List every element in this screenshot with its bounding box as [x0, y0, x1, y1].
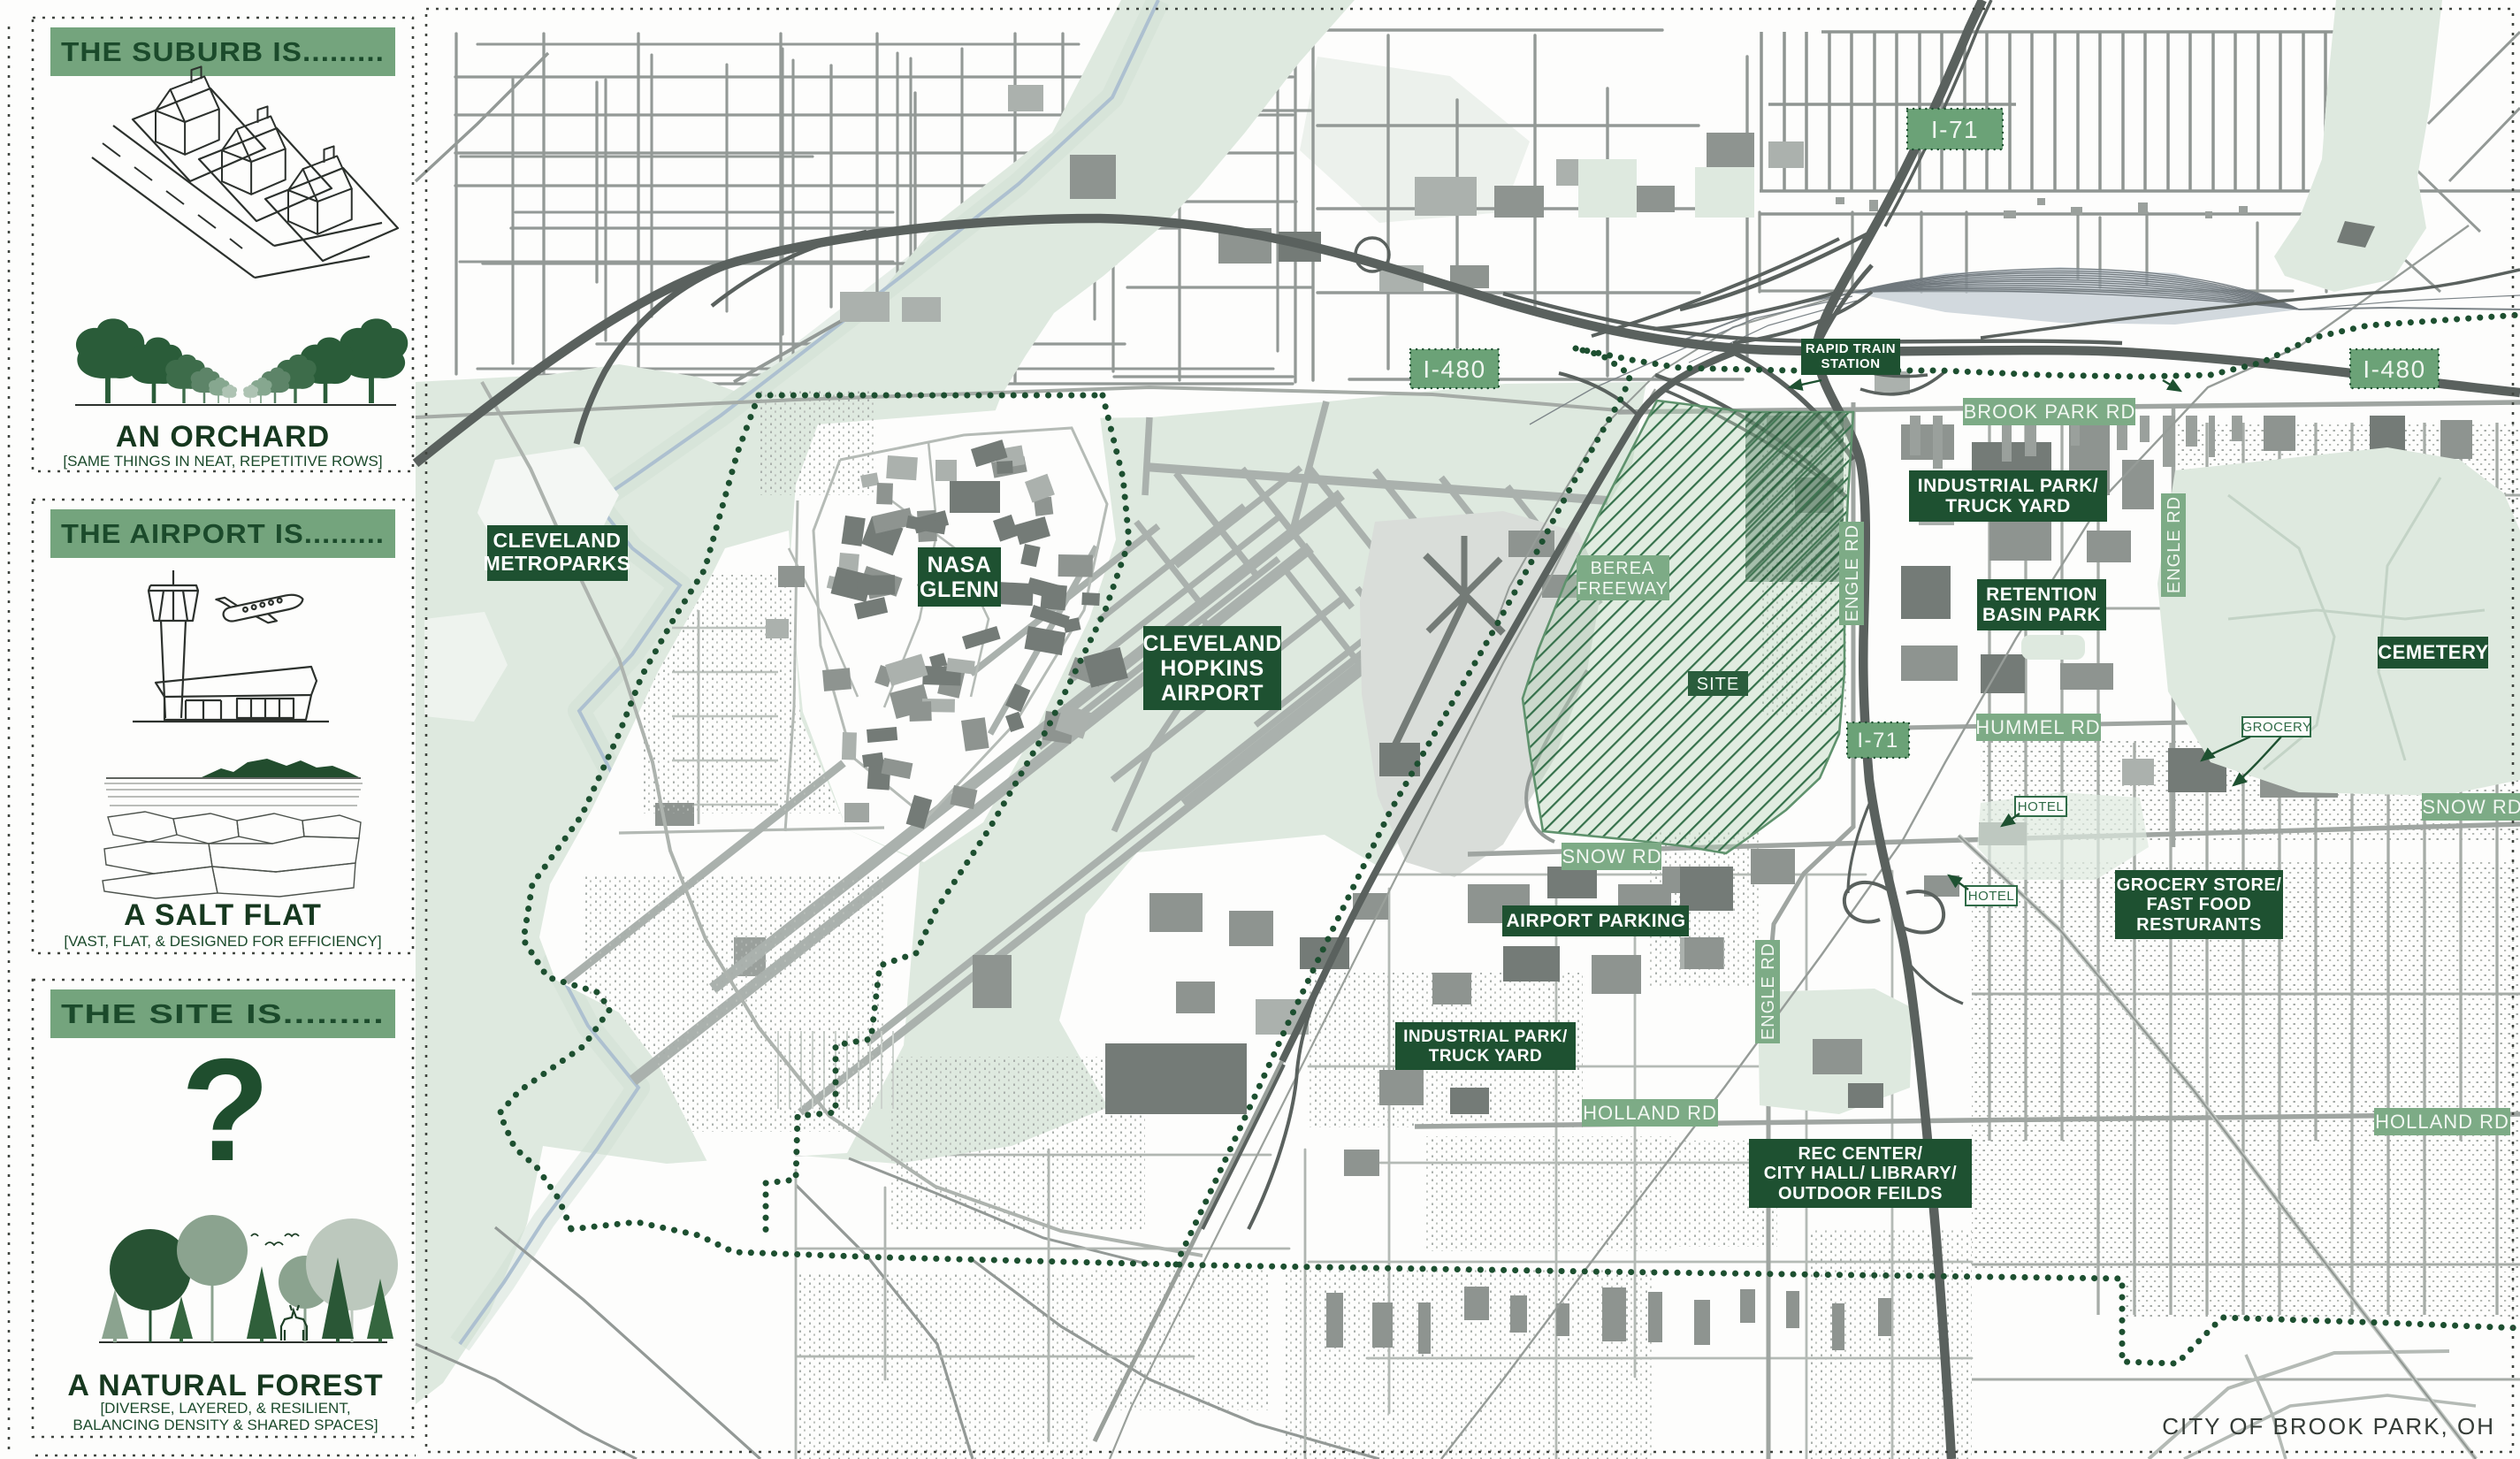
svg-text:GLENN: GLENN [920, 577, 999, 602]
svg-text:NASA: NASA [928, 553, 992, 577]
svg-text:RETENTION: RETENTION [1986, 584, 2097, 605]
svg-text:[VAST, FLAT, & DESIGNED FOR EF: [VAST, FLAT, & DESIGNED FOR EFFICIENCY] [64, 933, 381, 950]
svg-text:[DIVERSE, LAYERED, & RESILIENT: [DIVERSE, LAYERED, & RESILIENT, [100, 1400, 350, 1417]
svg-text:A SALT FLAT: A SALT FLAT [124, 898, 322, 932]
svg-text:BALANCING DENSITY & SHARED SPA: BALANCING DENSITY & SHARED SPACES] [73, 1417, 378, 1433]
svg-text:[SAME THINGS IN NEAT, REPETITI: [SAME THINGS IN NEAT, REPETITIVE ROWS] [63, 453, 382, 470]
svg-text:INDUSTRIAL PARK/: INDUSTRIAL PARK/ [1403, 1027, 1568, 1046]
svg-text:RAPID TRAIN: RAPID TRAIN [1806, 341, 1896, 356]
svg-text:ENGLE RD: ENGLE RD [2165, 496, 2184, 593]
svg-text:THE SITE IS.........: THE SITE IS......... [61, 998, 385, 1029]
svg-text:HOLLAND RD: HOLLAND RD [2375, 1111, 2509, 1133]
svg-text:INDUSTRIAL PARK/: INDUSTRIAL PARK/ [1918, 476, 2098, 496]
svg-text:BEREA: BEREA [1591, 559, 1655, 578]
svg-text:HOPKINS: HOPKINS [1160, 656, 1264, 681]
svg-text:HOTEL: HOTEL [1968, 889, 2015, 904]
svg-text:A NATURAL FOREST: A NATURAL FOREST [67, 1369, 383, 1402]
svg-text:ENGLE RD: ENGLE RD [1843, 524, 1862, 622]
svg-text:HUMMEL RD: HUMMEL RD [1975, 716, 2100, 738]
svg-text:THE SUBURB IS.........: THE SUBURB IS......... [61, 36, 385, 67]
svg-text:I-71: I-71 [1857, 729, 1898, 752]
svg-text:TRUCK YARD: TRUCK YARD [1945, 496, 2071, 516]
svg-text:CEMETERY: CEMETERY [2378, 641, 2488, 663]
svg-text:BASIN PARK: BASIN PARK [1982, 605, 2101, 625]
svg-text:AN ORCHARD: AN ORCHARD [116, 420, 330, 454]
svg-text:HOLLAND RD: HOLLAND RD [1583, 1102, 1717, 1124]
svg-text:SITE: SITE [1697, 675, 1739, 694]
svg-text:METROPARKS: METROPARKS [484, 552, 631, 575]
svg-text:TRUCK YARD: TRUCK YARD [1429, 1047, 1543, 1066]
svg-text:FREEWAY: FREEWAY [1577, 579, 1669, 599]
svg-text:CITY OF BROOK PARK, OH: CITY OF BROOK PARK, OH [2162, 1413, 2495, 1440]
svg-text:REC CENTER/: REC CENTER/ [1798, 1144, 1922, 1164]
svg-text:AIRPORT PARKING: AIRPORT PARKING [1506, 911, 1685, 931]
svg-text:GROCERY STORE/: GROCERY STORE/ [2117, 875, 2282, 895]
svg-text:STATION: STATION [1821, 356, 1880, 371]
svg-text:CLEVELAND: CLEVELAND [1142, 631, 1281, 656]
svg-text:OUTDOOR FEILDS: OUTDOOR FEILDS [1778, 1184, 1943, 1203]
svg-text:ENGLE RD: ENGLE RD [1759, 943, 1778, 1040]
svg-text:AIRPORT: AIRPORT [1161, 681, 1264, 706]
svg-text:CITY HALL/ LIBRARY/: CITY HALL/ LIBRARY/ [1764, 1164, 1957, 1183]
svg-text:RESTURANTS: RESTURANTS [2136, 915, 2262, 935]
svg-text:I-480: I-480 [2363, 355, 2425, 383]
svg-text:HOTEL: HOTEL [2018, 799, 2065, 814]
svg-text:SNOW RD: SNOW RD [2422, 796, 2520, 818]
svg-text:FAST FOOD: FAST FOOD [2147, 895, 2252, 914]
svg-text:GROCERY: GROCERY [2241, 720, 2311, 735]
svg-text:I-71: I-71 [1931, 116, 1979, 143]
svg-text:BROOK PARK RD: BROOK PARK RD [1964, 401, 2136, 423]
svg-text:THE AIRPORT IS.........: THE AIRPORT IS......... [61, 518, 385, 549]
svg-text:CLEVELAND: CLEVELAND [493, 529, 621, 552]
svg-text:?: ? [181, 1028, 271, 1191]
svg-text:SNOW RD: SNOW RD [1562, 845, 1661, 867]
svg-text:I-480: I-480 [1423, 355, 1485, 383]
